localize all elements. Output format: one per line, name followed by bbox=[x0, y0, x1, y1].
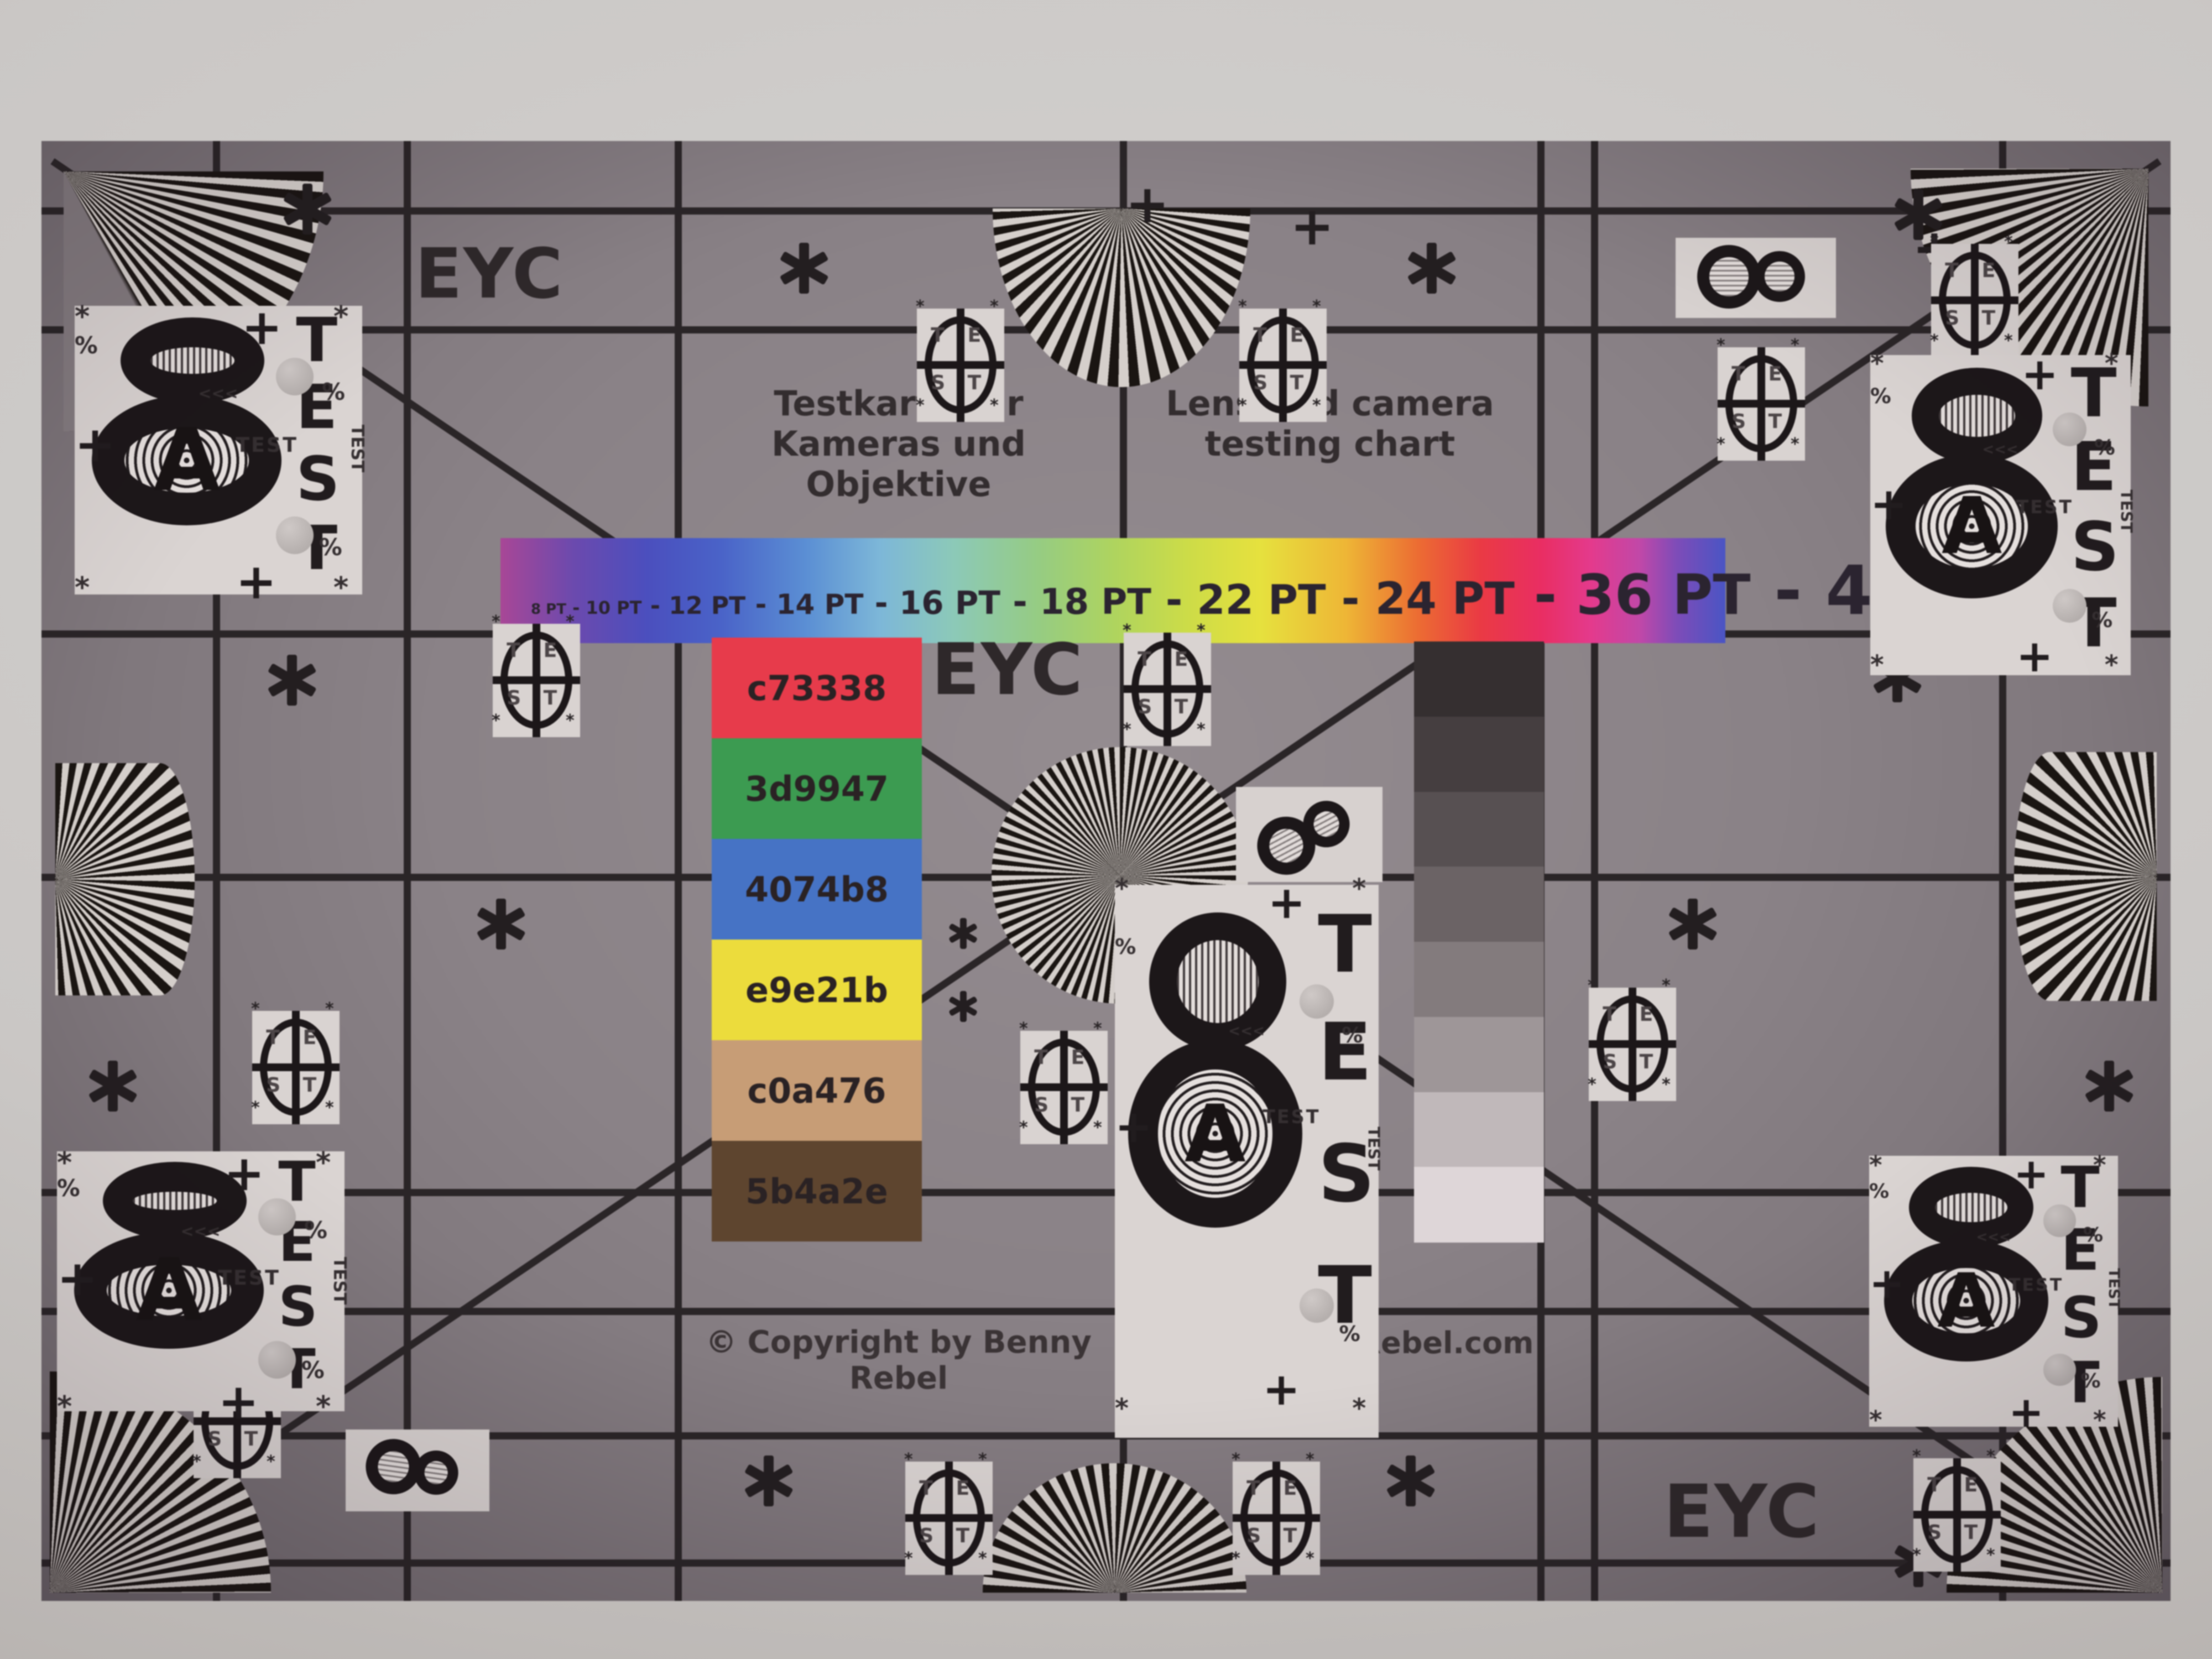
percent-mark: % bbox=[1339, 1322, 1360, 1346]
target-letter: S bbox=[919, 1525, 933, 1547]
color-patch-label: c73338 bbox=[747, 668, 886, 708]
corner-asterisk: * bbox=[1870, 650, 1884, 680]
target-letter: T bbox=[1945, 259, 1959, 282]
grayscale-step bbox=[1414, 1092, 1544, 1168]
siemens-star-right-edge bbox=[2014, 752, 2157, 1001]
corner-asterisk: * bbox=[1869, 1405, 1882, 1434]
test-word-small: TEST bbox=[218, 1266, 280, 1290]
target-corner-asterisk: * bbox=[1912, 1454, 1921, 1459]
font-size-rainbow-bar: 8 PT - 10 PT - 12 PT - 14 PT - 16 PT - 1… bbox=[500, 538, 1725, 643]
target-corner-asterisk: * bbox=[1238, 403, 1247, 409]
plus-mark: + bbox=[218, 1379, 259, 1425]
target-cross-horizontal bbox=[905, 1514, 993, 1522]
siemens-star-top-edge bbox=[993, 208, 1250, 387]
target-corner-asterisk: * bbox=[916, 403, 925, 409]
corner-asterisk: * bbox=[75, 300, 90, 333]
color-patch-c0a476: c0a476 bbox=[712, 1040, 922, 1141]
target-corner-asterisk: * bbox=[566, 718, 575, 724]
target-corner-asterisk: * bbox=[1588, 1082, 1597, 1088]
target-corner-asterisk: * bbox=[1093, 1026, 1102, 1032]
figure-eight-test-square: ATESTTESTTEST+++%%%****<<< bbox=[57, 1151, 345, 1411]
target-letter: T bbox=[1982, 307, 1996, 330]
asterisk-mark bbox=[1406, 243, 1457, 294]
target-corner-asterisk: * bbox=[1930, 338, 1939, 344]
target-corner-asterisk: * bbox=[1238, 304, 1247, 310]
plus-mark: + bbox=[1125, 174, 1170, 235]
target-letter: S bbox=[1246, 1525, 1261, 1547]
target-corner-asterisk: * bbox=[325, 1105, 334, 1111]
grayscale-step bbox=[1414, 792, 1544, 868]
percent-mark: % bbox=[1870, 384, 1891, 408]
corner-asterisk: * bbox=[1869, 1150, 1882, 1180]
target-corner-asterisk: * bbox=[1232, 1457, 1240, 1463]
corner-asterisk: * bbox=[2105, 650, 2119, 680]
test-word-small: TEST bbox=[2008, 1275, 2063, 1295]
grid-horizontal-line bbox=[41, 1189, 2171, 1196]
pt-label: - 10 PT bbox=[566, 597, 642, 618]
percent-mark: % bbox=[1869, 1180, 1889, 1203]
target-letter: T bbox=[1603, 1003, 1616, 1026]
target-corner-asterisk: * bbox=[1791, 343, 1799, 348]
target-corner-asterisk: * bbox=[978, 1556, 987, 1562]
test-column-letter: S bbox=[2071, 515, 2120, 580]
copyright-text: © Copyright by Benny Rebel bbox=[688, 1324, 1109, 1396]
eyc-text-bottom-right: EYC bbox=[1642, 1469, 1841, 1554]
test-crosshair-target: TEST**** bbox=[1589, 988, 1676, 1101]
letter-a: A bbox=[1942, 481, 2002, 572]
test-word-rotated: TEST bbox=[2117, 490, 2135, 533]
test-column-letter: S bbox=[2061, 1291, 2102, 1345]
asterisk-mark bbox=[87, 1061, 138, 1112]
test-crosshair-target: TEST**** bbox=[1718, 347, 1805, 461]
chevron-marks: <<< bbox=[199, 384, 238, 403]
grid-vertical-line bbox=[675, 141, 682, 1601]
test-crosshair-target: TEST**** bbox=[905, 1462, 993, 1575]
percent-mark: % bbox=[322, 378, 345, 405]
target-letter: E bbox=[1284, 1477, 1297, 1500]
percent-mark: % bbox=[1342, 1023, 1363, 1047]
target-letter: E bbox=[1175, 648, 1188, 671]
corner-asterisk: * bbox=[57, 1146, 72, 1180]
target-letter: S bbox=[507, 687, 521, 709]
grayscale-step bbox=[1414, 1167, 1544, 1243]
target-corner-asterisk: * bbox=[1232, 1556, 1240, 1562]
target-letter: E bbox=[1290, 324, 1304, 347]
test-crosshair-target: TEST**** bbox=[1233, 1462, 1320, 1575]
plus-mark: + bbox=[236, 559, 276, 605]
corner-asterisk: * bbox=[1870, 348, 1884, 379]
chevron-marks: <<< bbox=[1983, 441, 2018, 458]
gray-dot bbox=[258, 1198, 296, 1236]
test-chart-card: 8 PT - 10 PT - 12 PT - 14 PT - 16 PT - 1… bbox=[41, 141, 2171, 1601]
percent-mark: % bbox=[301, 1357, 325, 1384]
target-corner-asterisk: * bbox=[1912, 1553, 1921, 1558]
target-letter: T bbox=[1071, 1094, 1085, 1117]
test-word-small: TEST bbox=[2016, 496, 2073, 518]
target-corner-asterisk: * bbox=[1123, 727, 1131, 733]
target-cross-horizontal bbox=[1233, 1514, 1320, 1522]
test-word-small: TEST bbox=[1262, 1106, 1320, 1128]
target-letter: S bbox=[1138, 696, 1152, 718]
target-corner-asterisk: * bbox=[1717, 442, 1725, 447]
target-corner-asterisk: * bbox=[990, 304, 999, 310]
corner-asterisk: * bbox=[75, 571, 90, 604]
target-letter: E bbox=[303, 1026, 317, 1049]
color-patch-e9e21b: e9e21b bbox=[712, 940, 922, 1040]
target-letter: T bbox=[1034, 1046, 1048, 1069]
test-column-letter: S bbox=[278, 1281, 317, 1333]
percent-mark: % bbox=[2083, 1224, 2103, 1246]
title-german-line2: Kameras und Objektive bbox=[675, 424, 1123, 504]
plus-mark: + bbox=[1262, 1369, 1300, 1411]
pt-label: 8 PT bbox=[531, 601, 566, 618]
target-corner-asterisk: * bbox=[904, 1457, 913, 1463]
gray-dot bbox=[2053, 589, 2086, 623]
target-letter: E bbox=[968, 324, 982, 347]
test-word-rotated: TEST bbox=[1365, 1126, 1384, 1170]
target-cross-horizontal bbox=[252, 1063, 340, 1071]
target-letter: T bbox=[919, 1477, 933, 1500]
title-english: Lens and camera testing chart bbox=[1120, 383, 1540, 464]
target-corner-asterisk: * bbox=[916, 304, 925, 310]
target-letter: E bbox=[1964, 1474, 1978, 1496]
corner-asterisk: * bbox=[57, 1390, 72, 1423]
target-letter: S bbox=[1945, 307, 1959, 330]
corner-asterisk: * bbox=[333, 300, 348, 333]
plus-mark: + bbox=[2008, 1393, 2044, 1433]
pt-label: - 22 PT bbox=[1151, 576, 1326, 624]
percent-mark: % bbox=[2091, 608, 2112, 632]
asterisk-mark bbox=[282, 184, 333, 234]
target-corner-asterisk: * bbox=[566, 619, 575, 625]
target-corner-asterisk: * bbox=[1791, 442, 1799, 447]
ring-large bbox=[1697, 245, 1761, 309]
gray-dot bbox=[1300, 1288, 1334, 1323]
plus-mark: + bbox=[57, 1255, 98, 1302]
title-german: Testkarte für Kameras und Objektive bbox=[675, 383, 1123, 504]
gray-dot bbox=[2043, 1354, 2076, 1386]
corner-asterisk: * bbox=[1352, 1394, 1366, 1424]
percent-mark: % bbox=[1115, 935, 1136, 959]
target-corner-asterisk: * bbox=[1986, 1454, 1995, 1459]
target-cross-horizontal bbox=[1239, 361, 1327, 369]
grayscale-step bbox=[1414, 867, 1544, 942]
target-letter: T bbox=[544, 687, 557, 709]
target-letter: T bbox=[507, 639, 520, 662]
plus-mark: + bbox=[224, 1150, 265, 1197]
target-letter: T bbox=[1731, 363, 1745, 385]
target-letter: T bbox=[1138, 648, 1151, 671]
pt-label: - 24 PT bbox=[1326, 573, 1515, 624]
target-letter: T bbox=[266, 1026, 280, 1049]
chevron-marks: <<< bbox=[181, 1222, 221, 1240]
plus-mark: + bbox=[242, 304, 283, 351]
target-letter: S bbox=[266, 1074, 280, 1097]
target-corner-asterisk: * bbox=[251, 1006, 260, 1012]
pt-label: - 14 PT bbox=[745, 588, 863, 620]
target-cross-horizontal bbox=[917, 361, 1004, 369]
test-crosshair-target: TEST**** bbox=[1124, 633, 1211, 746]
target-cross-horizontal bbox=[1589, 1040, 1676, 1048]
test-crosshair-target: TEST**** bbox=[1931, 244, 2018, 357]
target-corner-asterisk: * bbox=[1306, 1457, 1314, 1463]
plus-mark: + bbox=[2016, 635, 2053, 677]
target-corner-asterisk: * bbox=[1662, 983, 1671, 989]
target-letter: S bbox=[1603, 1051, 1617, 1073]
target-corner-asterisk: * bbox=[192, 1459, 201, 1465]
corner-asterisk: * bbox=[316, 1146, 331, 1180]
target-cross-horizontal bbox=[493, 676, 580, 684]
pt-label: - 36 PT bbox=[1515, 562, 1751, 627]
asterisk-mark bbox=[743, 1455, 794, 1506]
asterisk-mark bbox=[267, 655, 317, 706]
test-word-rotated: TEST bbox=[347, 425, 367, 472]
figure-eight-test-square: ATESTTESTTEST+++%%%****<<< bbox=[1869, 1156, 2118, 1427]
target-corner-asterisk: * bbox=[1123, 628, 1131, 634]
corner-asterisk: * bbox=[2093, 1405, 2106, 1434]
target-corner-asterisk: * bbox=[251, 1105, 260, 1111]
color-patch-5b4a2e: 5b4a2e bbox=[712, 1141, 922, 1241]
test-crosshair-target: TEST**** bbox=[493, 624, 580, 737]
asterisk-mark bbox=[948, 918, 978, 948]
target-letter: S bbox=[1731, 410, 1746, 433]
grid-horizontal-line bbox=[41, 1308, 2171, 1315]
test-column-letter: T bbox=[1318, 907, 1372, 982]
target-letter: T bbox=[303, 1074, 317, 1097]
target-corner-asterisk: * bbox=[1306, 1556, 1314, 1562]
color-patch-label: e9e21b bbox=[745, 970, 888, 1010]
grid-vertical-line bbox=[404, 141, 411, 1601]
letter-a: A bbox=[153, 410, 220, 510]
target-corner-asterisk: * bbox=[904, 1556, 913, 1562]
target-corner-asterisk: * bbox=[1588, 983, 1597, 989]
test-word-small: TEST bbox=[236, 433, 298, 457]
plus-mark: + bbox=[2021, 353, 2058, 395]
title-english-line2: testing chart bbox=[1120, 424, 1540, 464]
figure-eight-test-square: ATESTTESTTEST+++%%%****<<< bbox=[75, 306, 362, 594]
letter-a: A bbox=[135, 1240, 202, 1340]
title-english-line1: Lens and camera bbox=[1120, 383, 1540, 424]
gray-dot bbox=[2053, 413, 2086, 446]
test-crosshair-target: TEST**** bbox=[1913, 1458, 2001, 1572]
target-corner-asterisk: * bbox=[1019, 1026, 1028, 1032]
target-letter: S bbox=[207, 1428, 222, 1451]
target-letter: T bbox=[1640, 1051, 1653, 1073]
target-letter: T bbox=[244, 1428, 258, 1451]
asterisk-mark bbox=[948, 991, 978, 1021]
letter-a: A bbox=[1185, 1088, 1246, 1180]
pt-label: - 18 PT bbox=[1000, 582, 1151, 623]
target-letter: T bbox=[1284, 1525, 1297, 1547]
color-patch-4074b8: 4074b8 bbox=[712, 839, 922, 940]
test-crosshair-target: TEST**** bbox=[1020, 1031, 1108, 1144]
gray-dot bbox=[276, 358, 314, 395]
target-cross-horizontal bbox=[1020, 1083, 1108, 1091]
test-crosshair-target: TEST**** bbox=[917, 309, 1004, 422]
pt-label: - 16 PT bbox=[863, 584, 1000, 622]
eyc-text-top-left: EYC bbox=[395, 234, 583, 314]
target-letter: T bbox=[1927, 1474, 1941, 1496]
figure-eight-test-square: ATESTTESTTEST+++%%%****<<< bbox=[1115, 885, 1379, 1438]
chevron-marks: <<< bbox=[1976, 1229, 2011, 1245]
target-letter: E bbox=[1071, 1046, 1085, 1069]
pt-label: - 12 PT bbox=[641, 592, 745, 620]
target-letter: T bbox=[1175, 696, 1188, 718]
gray-dot bbox=[276, 517, 314, 554]
target-corner-asterisk: * bbox=[1197, 628, 1206, 634]
grayscale-step bbox=[1414, 1017, 1544, 1093]
ring-small bbox=[1754, 251, 1805, 302]
plus-mark: + bbox=[1115, 1106, 1152, 1149]
percent-mark: % bbox=[304, 1217, 327, 1244]
corner-asterisk: * bbox=[1115, 874, 1129, 904]
target-corner-asterisk: * bbox=[990, 403, 999, 409]
gray-dot bbox=[258, 1341, 296, 1379]
target-cross-horizontal bbox=[1124, 685, 1211, 693]
plus-mark: + bbox=[2013, 1155, 2049, 1195]
asterisk-mark bbox=[779, 243, 830, 294]
photo-of-lens-test-chart: 8 PT - 10 PT - 12 PT - 14 PT - 16 PT - 1… bbox=[0, 0, 2212, 1659]
target-letter: S bbox=[1927, 1521, 1942, 1544]
corner-asterisk: * bbox=[2105, 348, 2119, 379]
color-patch-label: 4074b8 bbox=[745, 869, 889, 910]
target-letter: E bbox=[544, 639, 557, 662]
plus-mark: + bbox=[1290, 196, 1334, 257]
target-corner-asterisk: * bbox=[1093, 1125, 1102, 1131]
corner-asterisk: * bbox=[2093, 1150, 2106, 1180]
figure-eight-test-square: ATESTTESTTEST+++%%%****<<< bbox=[1870, 355, 2131, 675]
target-letter: S bbox=[931, 372, 945, 394]
target-corner-asterisk: * bbox=[1986, 1553, 1995, 1558]
grid-vertical-line bbox=[1591, 141, 1598, 1601]
eyc-text-middle: EYC bbox=[911, 629, 1104, 711]
test-word-rotated: TEST bbox=[330, 1257, 349, 1305]
percent-mark: % bbox=[319, 534, 342, 561]
plus-mark: + bbox=[75, 421, 116, 468]
gray-dot bbox=[2043, 1204, 2076, 1237]
target-corner-asterisk: * bbox=[2004, 239, 2013, 245]
plus-mark: + bbox=[1869, 1264, 1905, 1305]
test-crosshair-target: TEST**** bbox=[1239, 309, 1327, 422]
target-corner-asterisk: * bbox=[267, 1459, 275, 1465]
target-letter: T bbox=[1246, 1477, 1260, 1500]
test-word-rotated: TEST bbox=[2105, 1269, 2122, 1310]
eight-bottom-loop: A bbox=[92, 395, 281, 525]
asterisk-mark bbox=[2084, 1061, 2135, 1112]
target-letter: T bbox=[931, 324, 945, 347]
color-patch-3d9947: 3d9947 bbox=[712, 738, 922, 839]
target-letter: T bbox=[1964, 1521, 1978, 1544]
target-letter: T bbox=[956, 1525, 970, 1547]
eight-bottom-loop: A bbox=[1884, 1240, 2048, 1362]
target-letter: T bbox=[1253, 324, 1267, 347]
color-patch-label: 5b4a2e bbox=[745, 1171, 888, 1212]
target-corner-asterisk: * bbox=[1930, 239, 1939, 245]
plus-mark: + bbox=[1268, 882, 1306, 925]
target-cross-horizontal bbox=[1913, 1511, 2001, 1519]
corner-asterisk: * bbox=[333, 571, 348, 604]
percent-mark: % bbox=[2094, 435, 2115, 460]
target-letter: E bbox=[956, 1477, 970, 1500]
letter-a: A bbox=[1937, 1258, 1995, 1344]
target-cross-horizontal bbox=[1718, 400, 1805, 408]
grayscale-step bbox=[1414, 641, 1544, 717]
target-corner-asterisk: * bbox=[492, 619, 500, 625]
target-letter: E bbox=[1982, 259, 1996, 282]
target-corner-asterisk: * bbox=[1312, 403, 1321, 409]
target-corner-asterisk: * bbox=[978, 1457, 987, 1463]
corner-asterisk: * bbox=[316, 1390, 331, 1423]
asterisk-mark bbox=[476, 899, 526, 950]
test-column-letter: S bbox=[296, 450, 340, 508]
target-letter: T bbox=[968, 372, 982, 394]
target-corner-asterisk: * bbox=[1019, 1125, 1028, 1131]
percent-mark: % bbox=[2081, 1370, 2101, 1392]
grayscale-step bbox=[1414, 717, 1544, 792]
percent-mark: % bbox=[75, 332, 98, 359]
eight-top-loop bbox=[1149, 912, 1286, 1051]
grayscale-step bbox=[1414, 942, 1544, 1018]
target-letter: E bbox=[1640, 1003, 1653, 1026]
plus-mark: + bbox=[1870, 483, 1907, 525]
siemens-star-left-edge bbox=[55, 763, 195, 995]
eight-bottom-loop: A bbox=[1886, 454, 2058, 598]
asterisk-mark bbox=[1667, 899, 1718, 950]
target-corner-asterisk: * bbox=[2004, 338, 2013, 344]
asterisk-mark bbox=[1385, 1455, 1436, 1506]
corner-asterisk: * bbox=[1115, 1394, 1129, 1424]
chevron-marks: <<< bbox=[1228, 1023, 1265, 1040]
target-letter: T bbox=[1290, 372, 1304, 394]
color-patch-c73338: c73338 bbox=[712, 638, 922, 738]
target-cross-horizontal bbox=[1931, 296, 2018, 304]
color-patch-label: c0a476 bbox=[747, 1071, 886, 1111]
target-letter: S bbox=[1034, 1094, 1048, 1117]
target-corner-asterisk: * bbox=[325, 1006, 334, 1012]
target-corner-asterisk: * bbox=[492, 718, 500, 724]
siemens-star-bottom-edge bbox=[983, 1463, 1246, 1593]
color-patch-label: 3d9947 bbox=[745, 769, 889, 809]
target-corner-asterisk: * bbox=[1717, 343, 1725, 348]
test-crosshair-target: TEST**** bbox=[252, 1011, 340, 1124]
target-corner-asterisk: * bbox=[1312, 304, 1321, 310]
corner-asterisk: * bbox=[1352, 874, 1366, 904]
target-letter: T bbox=[1768, 410, 1782, 433]
target-letter: E bbox=[1768, 363, 1782, 385]
gray-dot bbox=[1300, 984, 1334, 1019]
pt-scale-labels: 8 PT - 10 PT - 12 PT - 14 PT - 16 PT - 1… bbox=[531, 551, 2038, 630]
eight-bottom-loop: A bbox=[1128, 1040, 1302, 1228]
title-german-line1: Testkarte für bbox=[675, 383, 1123, 424]
target-corner-asterisk: * bbox=[1197, 727, 1206, 733]
target-corner-asterisk: * bbox=[1662, 1082, 1671, 1088]
target-letter: S bbox=[1253, 372, 1267, 394]
eight-bottom-loop: A bbox=[74, 1232, 264, 1349]
